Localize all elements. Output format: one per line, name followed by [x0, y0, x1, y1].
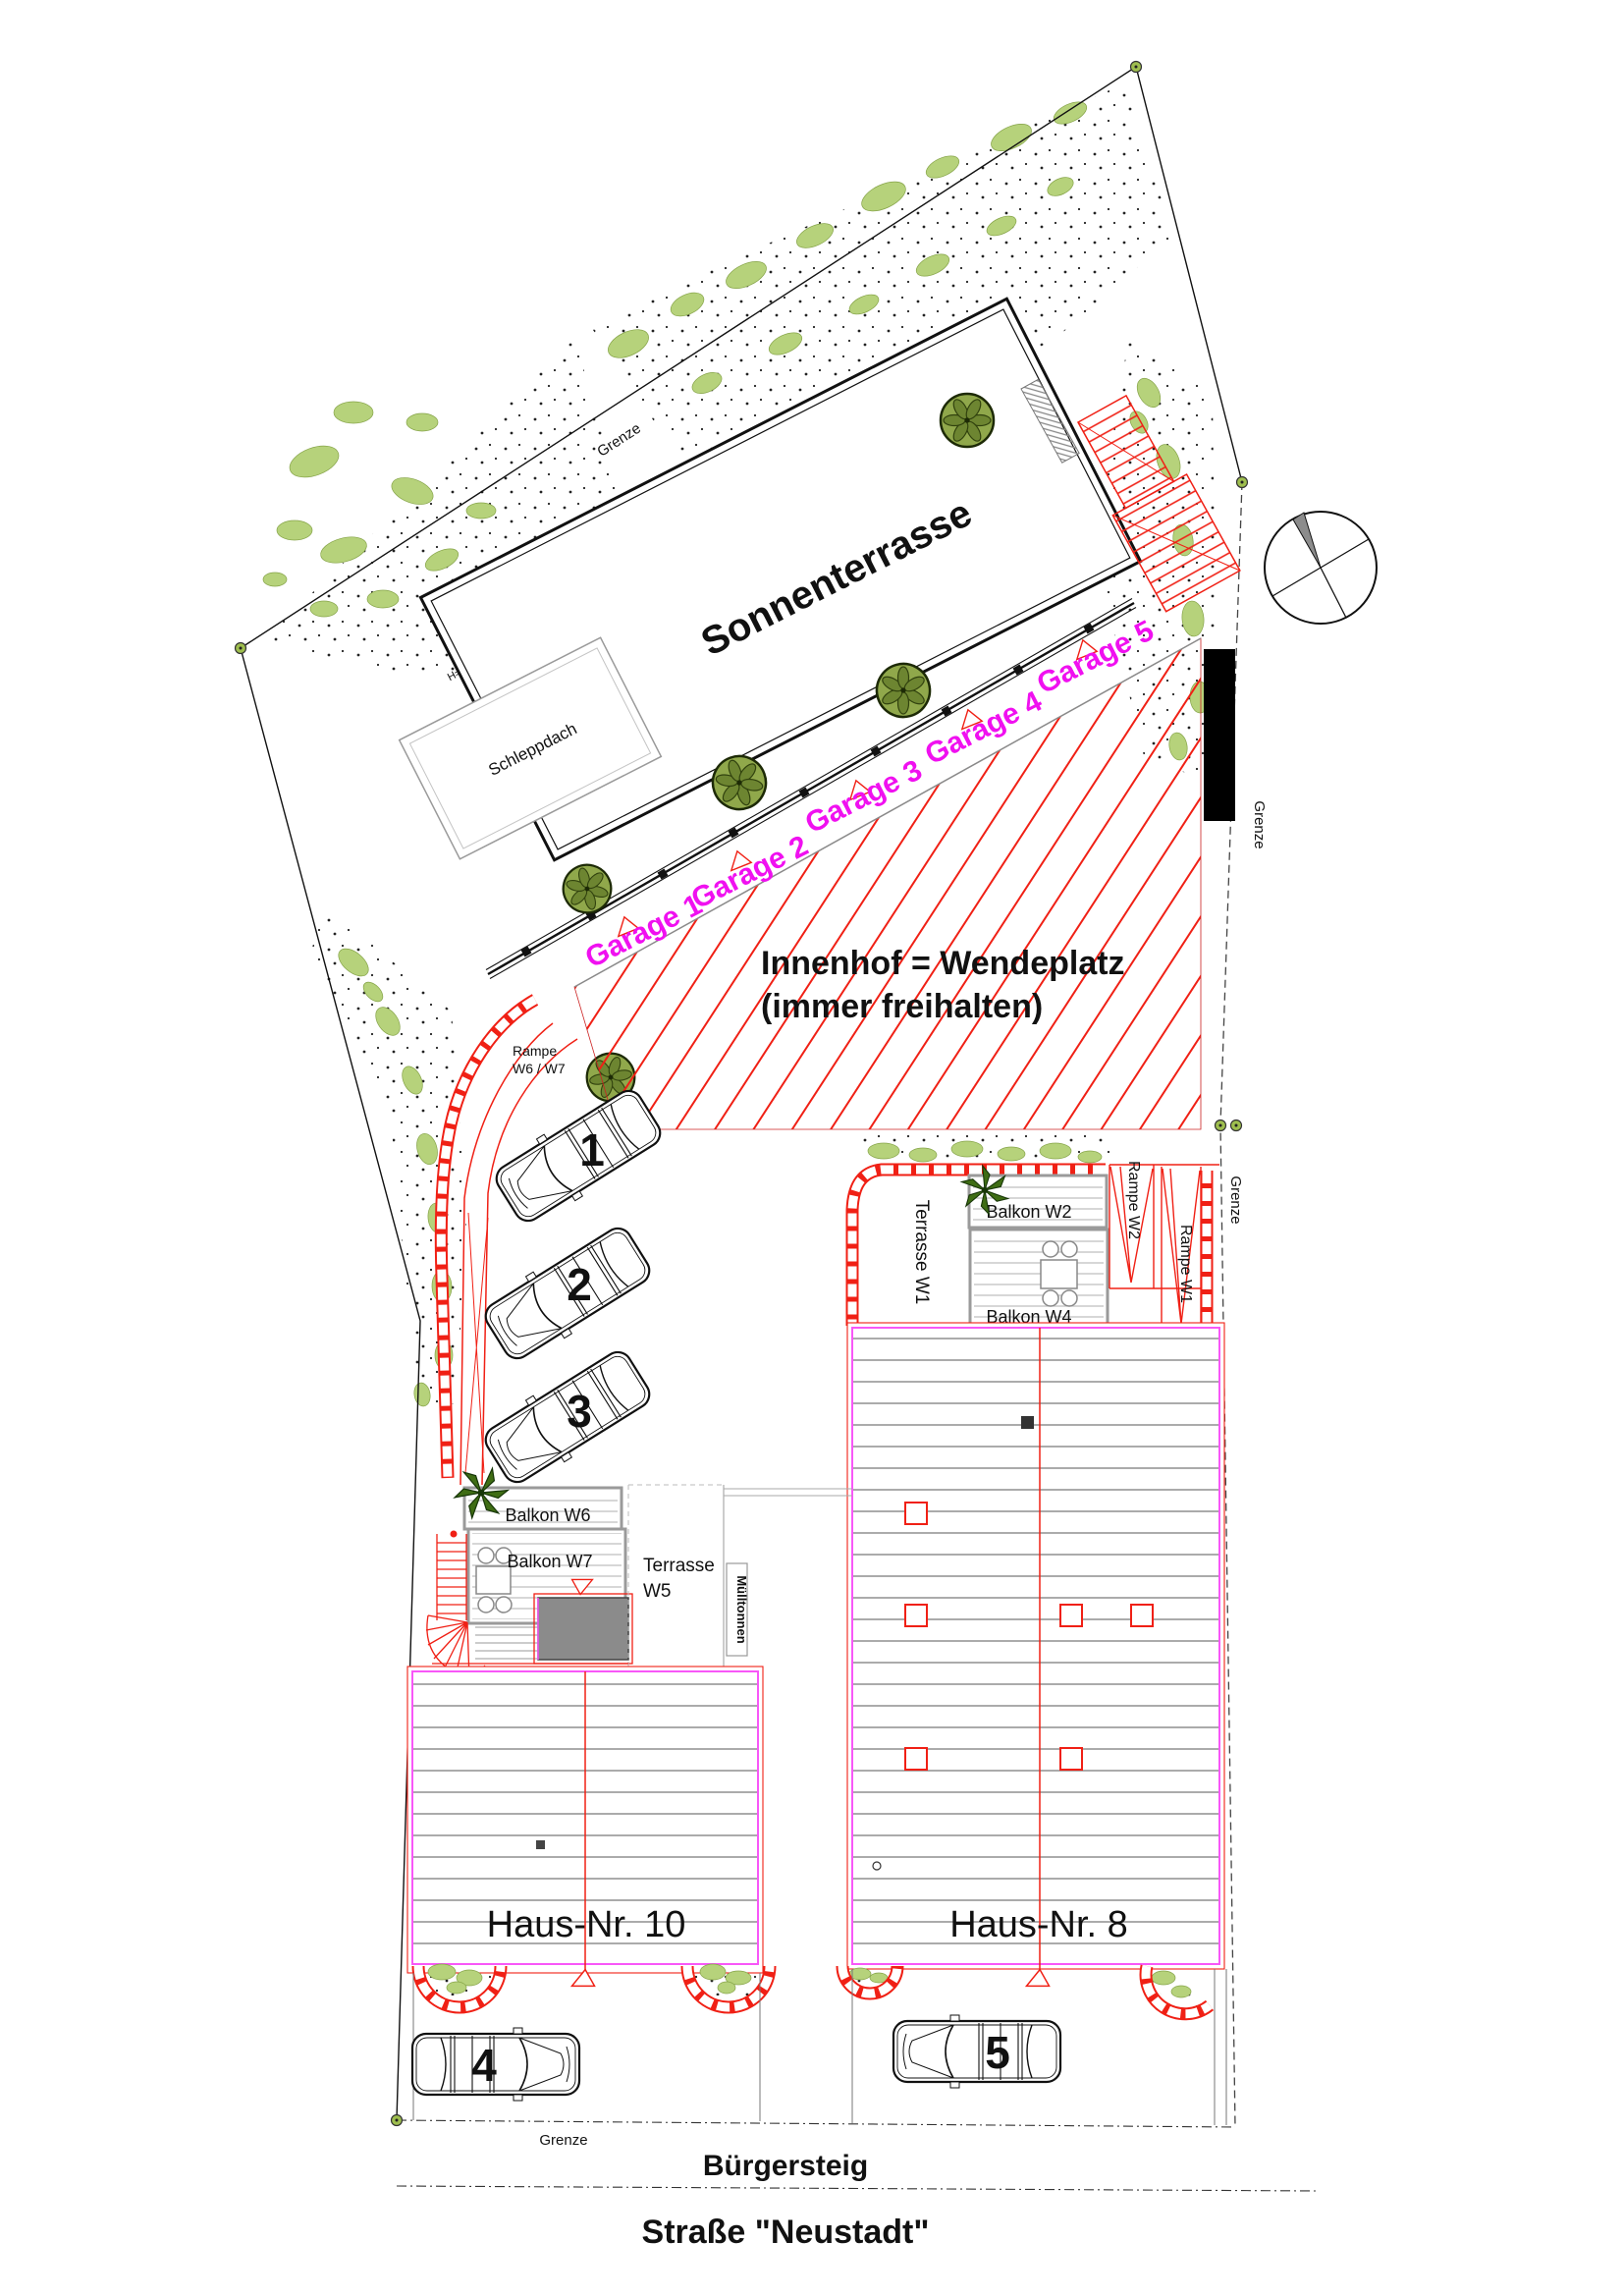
boundary-marker-icon: [1216, 1121, 1226, 1131]
patio-table: [1041, 1260, 1077, 1288]
roof-hatch: [536, 1840, 545, 1849]
house-8: [847, 1323, 1224, 1969]
entrance-marker-haus8: [1026, 1970, 1049, 1987]
patio-table: [476, 1566, 511, 1594]
label-buergersteig: Bürgersteig: [703, 2150, 868, 2182]
parking-number-5: 5: [985, 2027, 1010, 2078]
parking-number-3: 3: [567, 1386, 592, 1437]
label-innenhof-line1: Innenhof = Wendeplatz: [761, 945, 1125, 982]
label-rampe-w6-w7-line2: W6 / W7: [513, 1061, 566, 1076]
entry-steps: [475, 1627, 542, 1659]
parking-car-5: [893, 2015, 1060, 2088]
label-strasse: Straße "Neustadt": [642, 2214, 930, 2251]
label-haus-10: Haus-Nr. 10: [487, 1904, 686, 1945]
label-rampe-w2: Rampe W2: [1125, 1161, 1142, 1239]
label-terrasse-w5-line2: W5: [643, 1581, 672, 1602]
parking-number-2: 2: [567, 1259, 592, 1310]
label-terrasse-w5-line1: Terrasse: [643, 1556, 715, 1576]
label-balkon-w7: Balkon W7: [507, 1552, 592, 1571]
tree-icon: [558, 859, 617, 918]
label-rampe-w1: Rampe W1: [1177, 1225, 1194, 1303]
boundary-marker-icon: [1131, 62, 1142, 73]
label-terrasse-w1: Terrasse W1: [911, 1200, 932, 1305]
parking-car-1: [488, 1081, 668, 1231]
boundary-marker-icon: [236, 643, 246, 654]
boundary-marker-icon: [1231, 1121, 1242, 1131]
boundary-marker-icon: [1237, 477, 1248, 488]
house8-garden-band: [862, 1135, 1109, 1165]
label-innenhof-line2: (immer freihalten): [761, 988, 1043, 1025]
label-balkon-w6: Balkon W6: [505, 1505, 590, 1525]
boundary-label-right-upper: Grenze: [1251, 800, 1268, 848]
parking-number-1: 1: [579, 1124, 605, 1175]
site-plan-drawing: Grenze Grenze Grenze Grenze H=1.00m H=1.…: [0, 0, 1623, 2296]
label-haus-8: Haus-Nr. 8: [949, 1904, 1128, 1945]
north-arrow-icon: [1265, 512, 1377, 624]
boundary-marker-icon: [392, 2115, 403, 2126]
site-plan: Grenze Grenze Grenze Grenze H=1.00m H=1.…: [0, 0, 1623, 2296]
label-balkon-w2: Balkon W2: [986, 1202, 1071, 1222]
parking-number-4: 4: [471, 2040, 497, 2091]
boundary-wall: [1204, 649, 1235, 821]
boundary-label-right-lower: Grenze: [1227, 1175, 1244, 1224]
label-muelltonnen: Mülltonnen: [734, 1575, 749, 1643]
tree-icon: [941, 394, 994, 447]
entrance-canopy: [534, 1594, 632, 1664]
boundary-label-bottom: Grenze: [539, 2132, 587, 2149]
label-rampe-w6-w7-line1: Rampe: [513, 1043, 557, 1059]
chimney: [1021, 1416, 1034, 1429]
